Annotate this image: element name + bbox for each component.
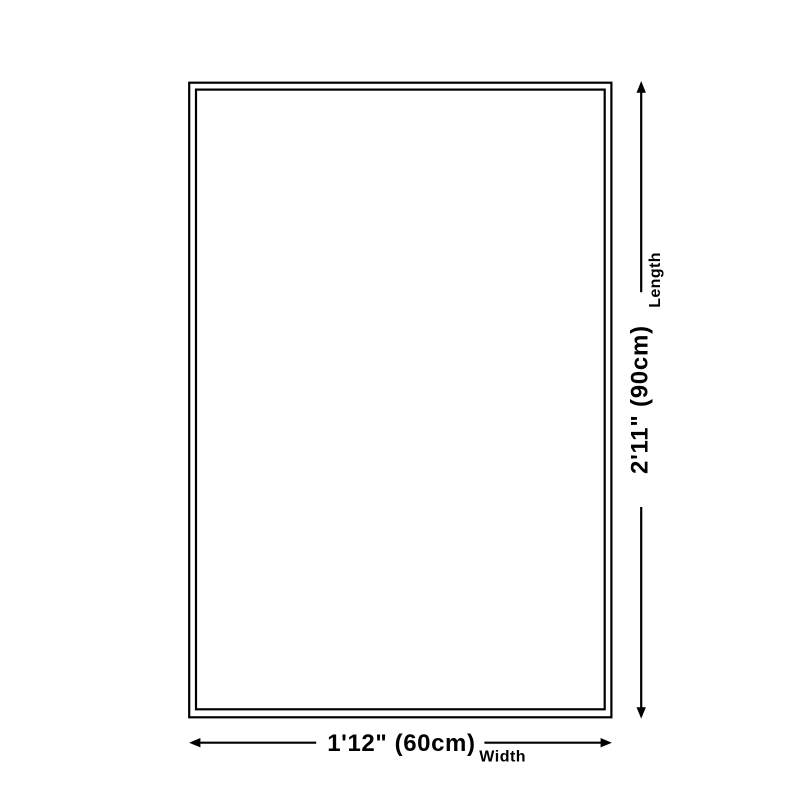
svg-text:2'11" (90cm): 2'11" (90cm) [627, 325, 654, 474]
svg-text:Width: Width [479, 748, 526, 765]
svg-text:1'12" (60cm): 1'12" (60cm) [327, 730, 475, 757]
svg-text:Length: Length [647, 252, 664, 308]
